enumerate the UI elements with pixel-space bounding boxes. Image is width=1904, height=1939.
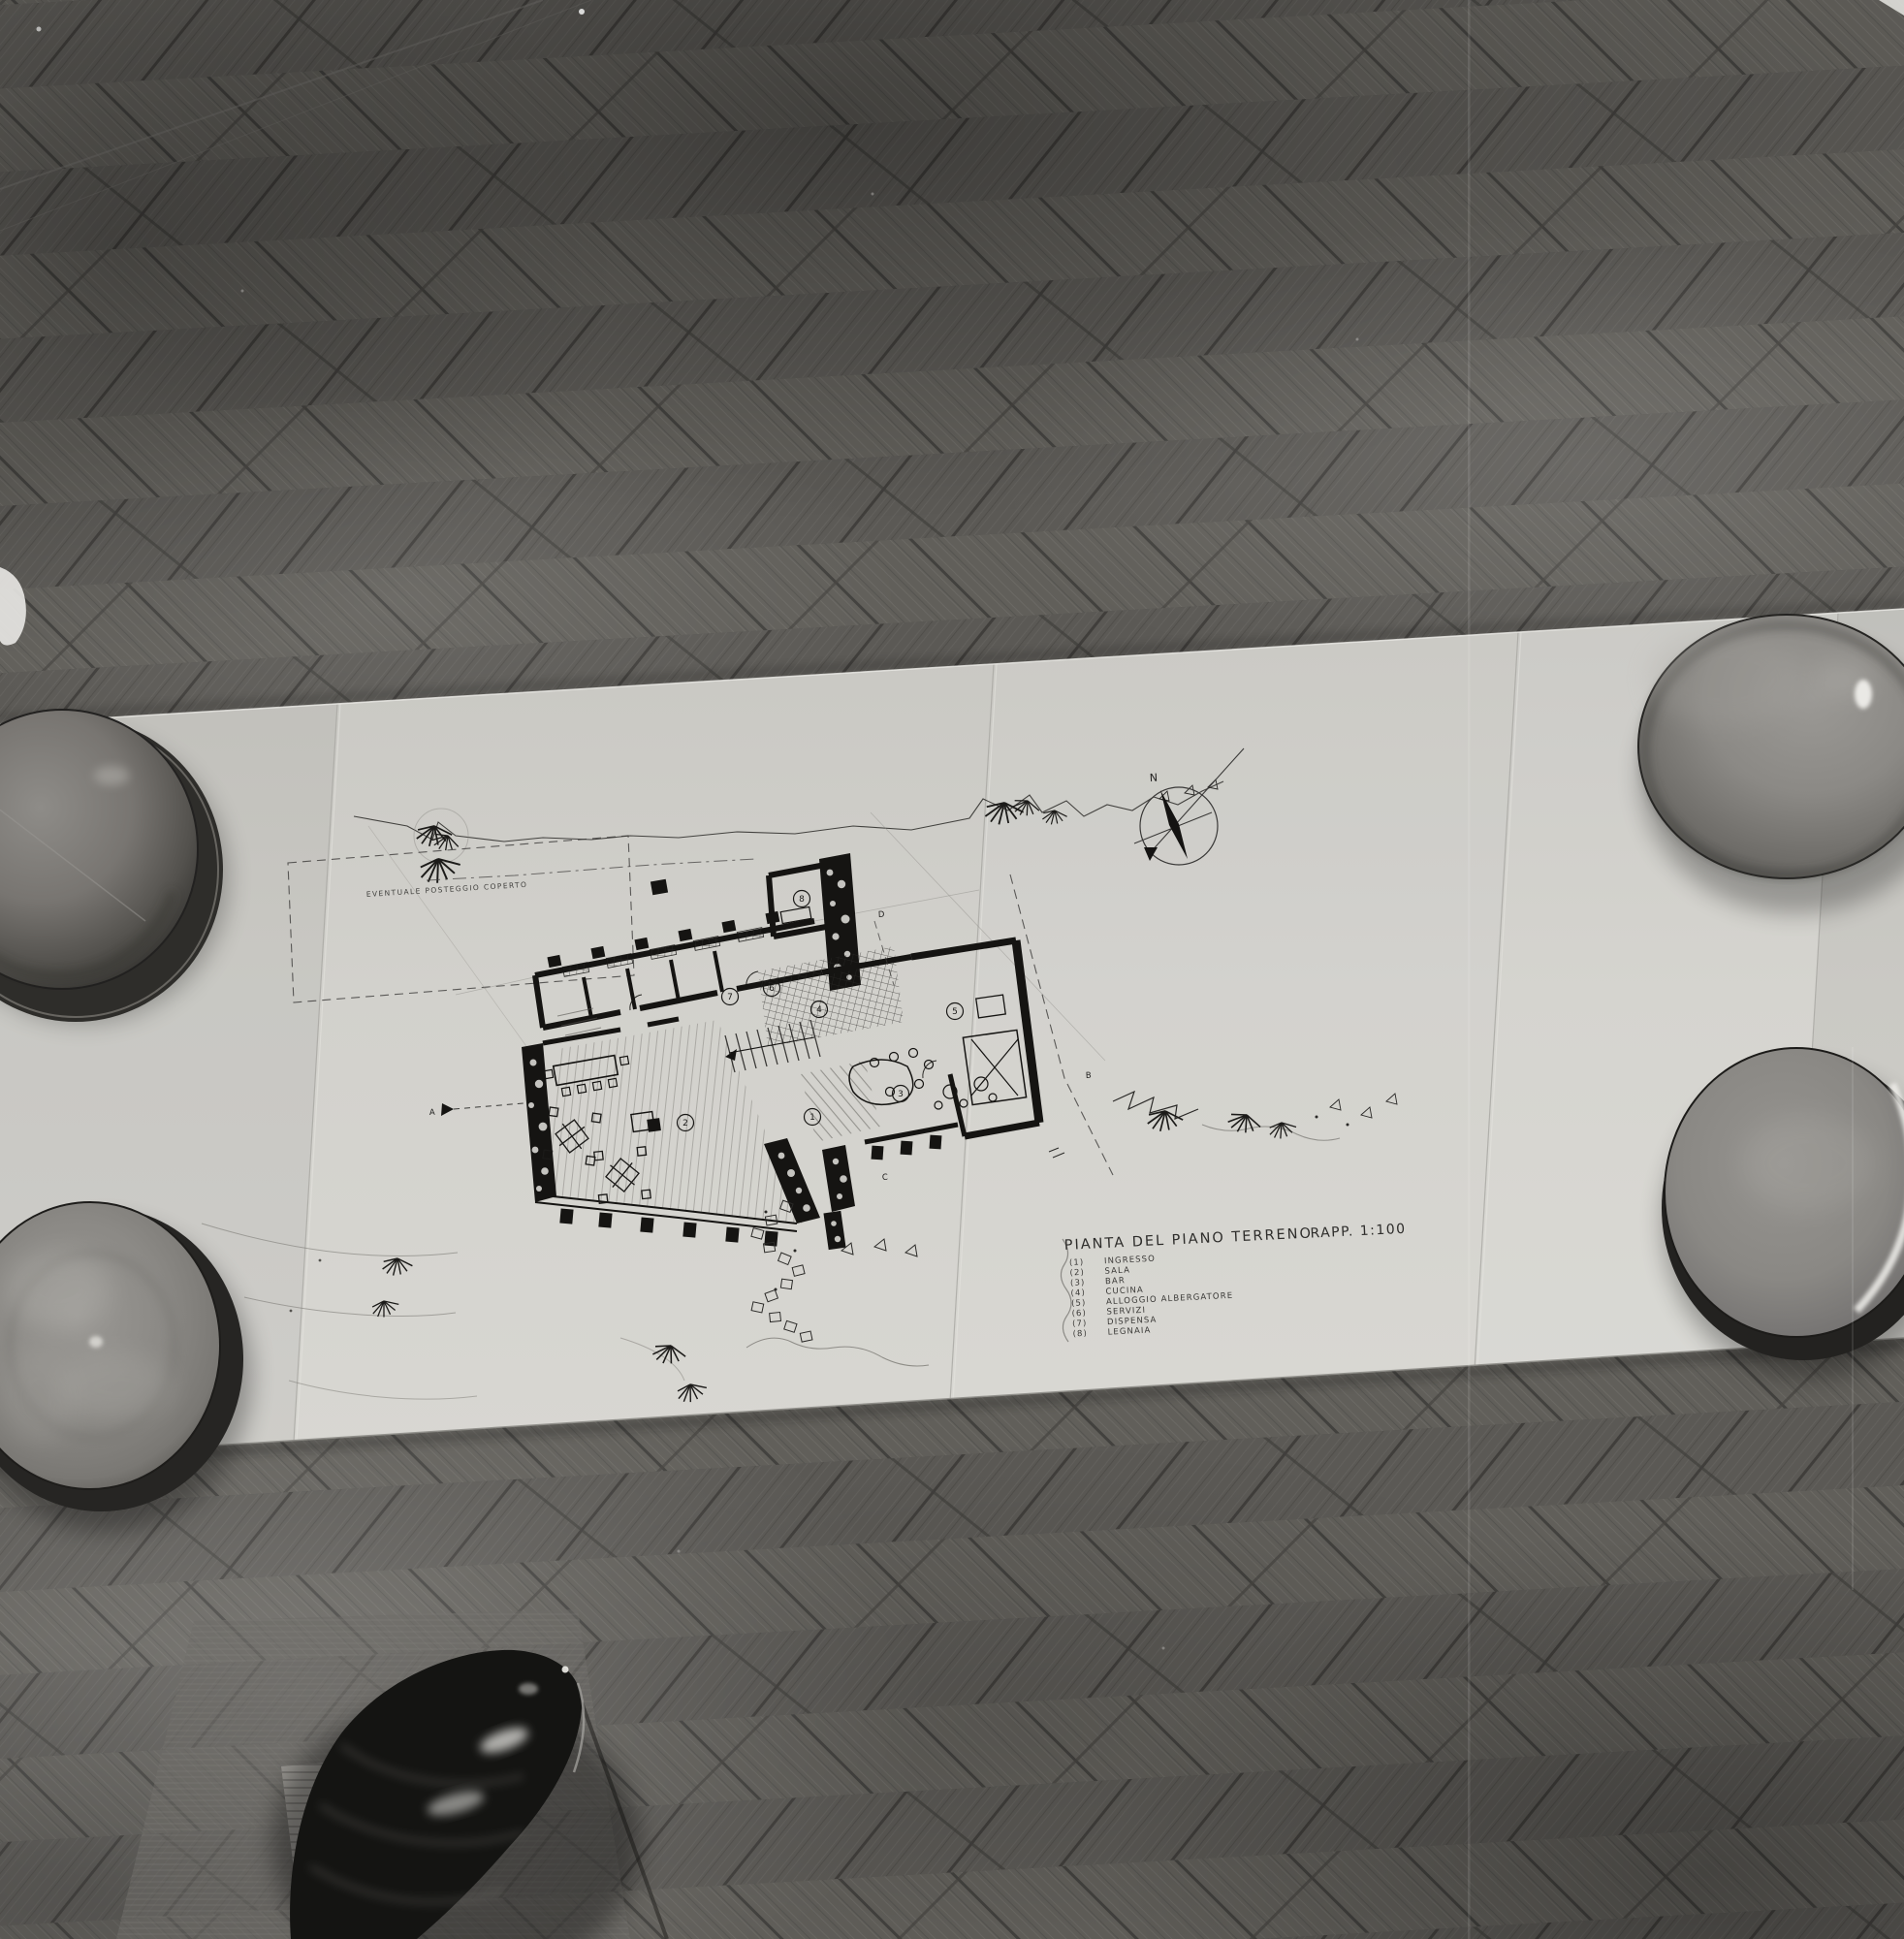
room-number-1: 1	[809, 1113, 815, 1123]
room-number-2: 2	[682, 1119, 688, 1128]
legend-num-5: (5)	[1071, 1298, 1087, 1309]
section-label-a: A	[429, 1108, 436, 1118]
section-label-c: C	[882, 1173, 889, 1183]
room-number-6: 6	[769, 984, 775, 994]
legend-num-1: (1)	[1069, 1257, 1085, 1268]
north-label: N	[1149, 772, 1158, 784]
legend-num-3: (3)	[1070, 1278, 1086, 1288]
room-number-4: 4	[816, 1005, 822, 1015]
section-label-b: B	[1086, 1071, 1093, 1081]
legend-num-2: (2)	[1069, 1268, 1085, 1279]
room-number-3: 3	[898, 1090, 904, 1099]
scene: N EVENTUALE POSTEGGIO COPERTO	[0, 0, 1904, 1939]
legend-label-2: SALA	[1104, 1265, 1130, 1276]
room-number-8: 8	[799, 895, 805, 905]
shoe	[116, 1609, 667, 1939]
plan-sheet	[0, 603, 1904, 1466]
section-label-d: D	[878, 910, 886, 920]
legend-label-3: BAR	[1105, 1276, 1126, 1287]
room-number-5: 5	[952, 1007, 958, 1017]
legend-num-8: (8)	[1072, 1329, 1088, 1340]
legend-num-6: (6)	[1071, 1309, 1087, 1319]
legend-num-7: (7)	[1072, 1319, 1088, 1329]
photo-architectural-plan-on-floor: N EVENTUALE POSTEGGIO COPERTO	[0, 0, 1904, 1939]
legend-num-4: (4)	[1070, 1288, 1086, 1299]
room-number-7: 7	[727, 993, 733, 1002]
